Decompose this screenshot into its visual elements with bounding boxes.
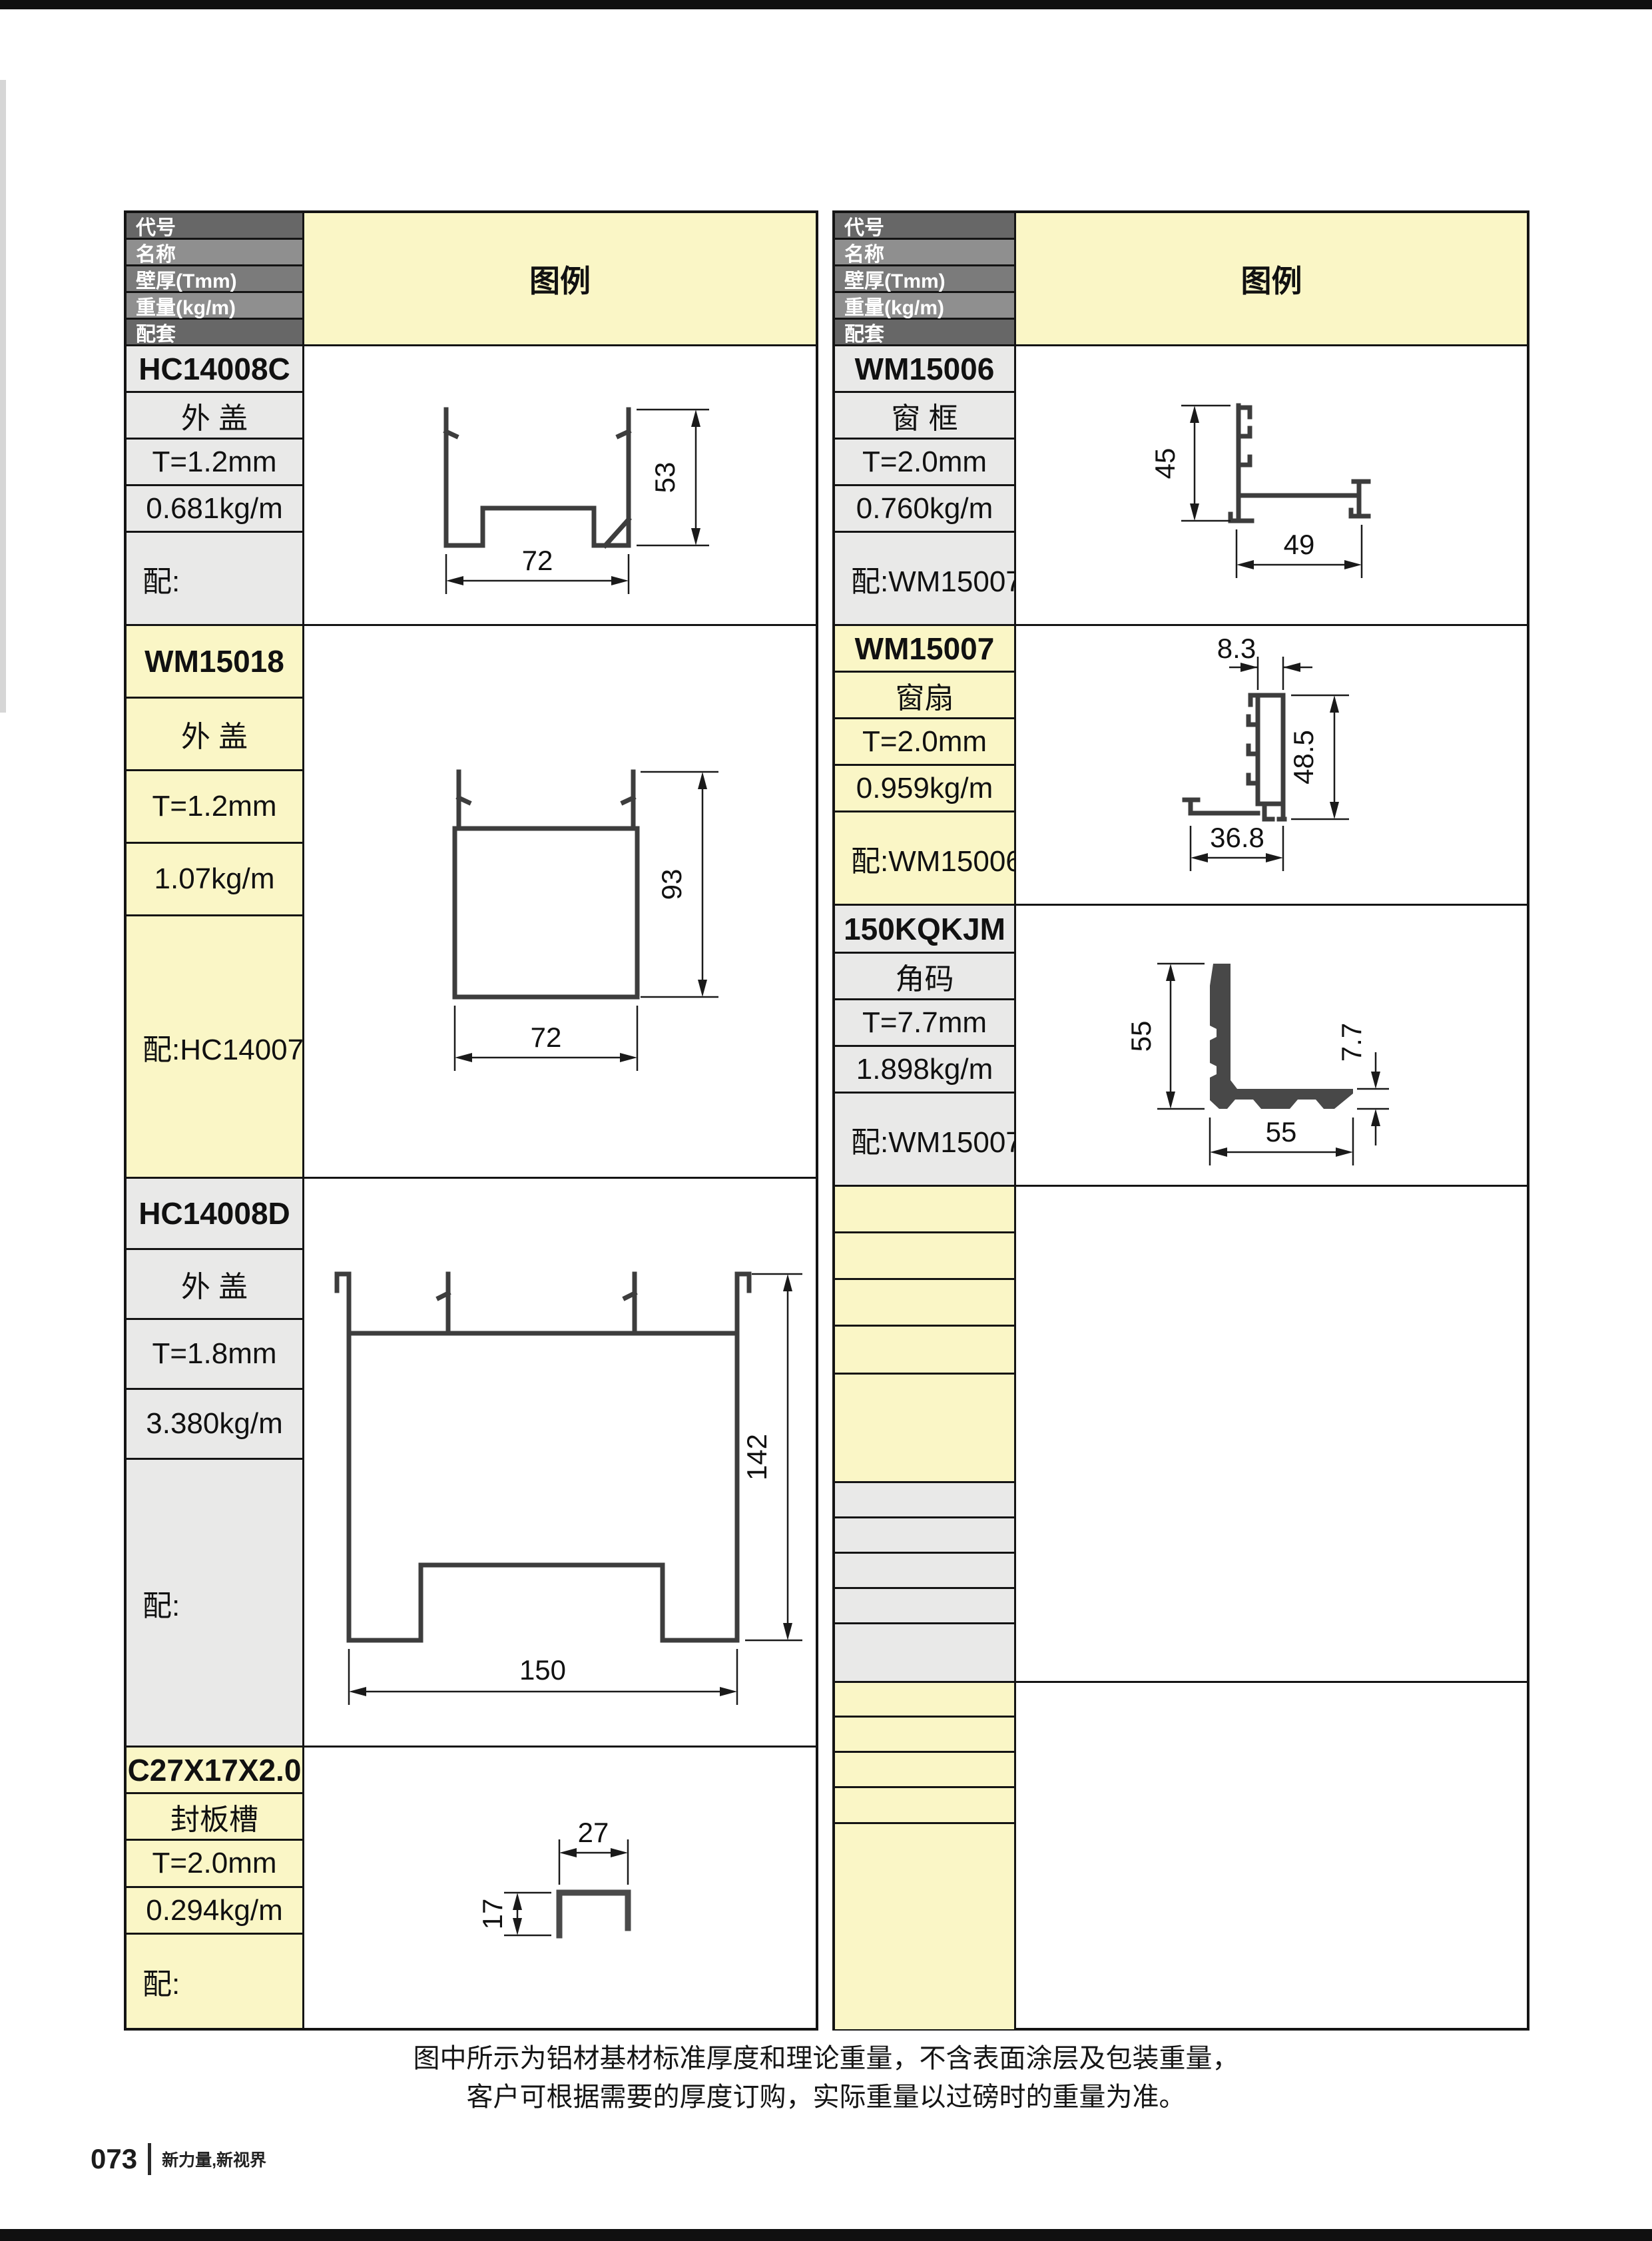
match-cell: 配: [127, 1460, 302, 1748]
drawing-cell-wm15006: 45 49 [1016, 346, 1527, 626]
drawing-cell-wm15018: 93 72 [304, 626, 816, 1179]
wm15007-profile-drawing: 8.3 48.5 36.8 [1016, 626, 1527, 904]
drawing-cell-hc14008c: 72 53 [304, 346, 816, 626]
name-cell: 外 盖 [127, 699, 302, 771]
dim-label: 53 [649, 462, 681, 493]
match-cell: 配:WM15007 [835, 533, 1014, 626]
right-spec-table: 代号 名称 壁厚(Tmm) 重量(kg/m) 配套 WM15006 窗 框 T=… [832, 210, 1529, 2031]
dim-label: 72 [522, 545, 553, 576]
empty-cell [835, 1624, 1014, 1683]
dim-label: 49 [1284, 529, 1315, 560]
name-cell: 角码 [835, 954, 1014, 1000]
name-cell: 窗 框 [835, 393, 1014, 440]
empty-cell [835, 1824, 1014, 2029]
match-cell: 配: [127, 1935, 302, 2028]
header-cell-thickness: 壁厚(Tmm) [127, 266, 302, 293]
header-cell-weight: 重量(kg/m) [127, 293, 302, 320]
empty-drawing-cell [1016, 1187, 1527, 1683]
dim-label: 55 [1266, 1116, 1297, 1147]
empty-cell [835, 1327, 1014, 1375]
header-cell-thickness: 壁厚(Tmm) [835, 266, 1014, 293]
weight-cell: 3.380kg/m [127, 1390, 302, 1460]
header-cell-name: 名称 [835, 240, 1014, 266]
disclaimer-line-1: 图中所示为铝材基材标准厚度和理论重量，不含表面涂层及包装重量， [0, 2039, 1652, 2078]
match-cell: 配:WM15007 [835, 1094, 1014, 1187]
header-cell-match: 配套 [835, 320, 1014, 346]
dim-label: 72 [531, 1022, 562, 1053]
dim-label: 27 [578, 1817, 609, 1848]
left-spec-table: 代号 名称 壁厚(Tmm) 重量(kg/m) 配套 HC14008C 外 盖 T… [124, 210, 818, 2031]
thickness-cell: T=1.2mm [127, 771, 302, 844]
thickness-cell: T=2.0mm [835, 719, 1014, 766]
code-cell: HC14008C [127, 346, 302, 393]
right-table-label-column: 代号 名称 壁厚(Tmm) 重量(kg/m) 配套 WM15006 窗 框 T=… [835, 213, 1016, 2028]
code-cell: HC14008D [127, 1179, 302, 1250]
thickness-cell: T=7.7mm [835, 1000, 1014, 1047]
left-table-drawing-column: 图例 72 53 93 72 [304, 213, 816, 2028]
name-cell: 外 盖 [127, 1250, 302, 1320]
empty-drawing-cell [1016, 1683, 1527, 2028]
disclaimer-notes: 图中所示为铝材基材标准厚度和理论重量，不含表面涂层及包装重量， 客户可根据需要的… [0, 2039, 1652, 2116]
dim-label: 142 [741, 1434, 772, 1480]
footer-divider [148, 2143, 151, 2175]
thickness-cell: T=1.8mm [127, 1320, 302, 1390]
empty-cell [835, 1788, 1014, 1824]
dim-label: 48.5 [1288, 730, 1319, 785]
drawing-cell-150kqkjm: 55 55 7.7 [1016, 906, 1527, 1187]
disclaimer-line-2: 客户可根据需要的厚度订购，实际重量以过磅时的重量为准。 [0, 2078, 1652, 2116]
left-edge-print-mark [0, 80, 6, 713]
empty-cell [835, 1554, 1014, 1589]
empty-cell [835, 1187, 1014, 1233]
drawing-cell-hc14008d: 150 142 [304, 1179, 816, 1748]
kqkjm-corner-bracket-drawing: 55 55 7.7 [1016, 906, 1527, 1185]
page-number: 073 [91, 2143, 137, 2175]
empty-cell [835, 1683, 1014, 1718]
thickness-cell: T=2.0mm [127, 1841, 302, 1888]
thickness-cell: T=1.2mm [127, 440, 302, 486]
empty-cell [835, 1589, 1014, 1624]
thickness-cell: T=2.0mm [835, 440, 1014, 486]
name-cell: 封板槽 [127, 1794, 302, 1841]
legend-header-cell: 图例 [1016, 213, 1527, 346]
code-cell: C27X17X2.0 [127, 1748, 302, 1794]
dim-label: 36.8 [1210, 822, 1264, 853]
top-black-bar [0, 0, 1652, 9]
match-cell: 配:HC14007 [127, 916, 302, 1179]
name-cell: 外 盖 [127, 393, 302, 440]
code-cell: WM15006 [835, 346, 1014, 393]
header-cell-weight: 重量(kg/m) [835, 293, 1014, 320]
weight-cell: 0.681kg/m [127, 486, 302, 533]
name-cell: 窗扇 [835, 673, 1014, 719]
hc14008c-profile-drawing: 72 53 [304, 346, 816, 624]
empty-cell [835, 1718, 1014, 1753]
dim-label: 55 [1125, 1021, 1157, 1052]
code-cell: 150KQKJM [835, 906, 1014, 954]
weight-cell: 1.07kg/m [127, 844, 302, 916]
empty-cell [835, 1483, 1014, 1518]
code-cell: WM15018 [127, 626, 302, 699]
header-cell-code: 代号 [835, 213, 1014, 240]
left-table-label-column: 代号 名称 壁厚(Tmm) 重量(kg/m) 配套 HC14008C 外 盖 T… [127, 213, 304, 2028]
wm15018-profile-drawing: 93 72 [304, 626, 816, 1177]
empty-cell [835, 1280, 1014, 1327]
legend-header-cell: 图例 [304, 213, 816, 346]
hc14008d-profile-drawing: 150 142 [304, 1179, 816, 1746]
footer-slogan: 新力量,新视界 [162, 2147, 266, 2171]
empty-cell [835, 1518, 1014, 1554]
header-cell-match: 配套 [127, 320, 302, 346]
header-cell-code: 代号 [127, 213, 302, 240]
drawing-cell-c27x17: 27 17 [304, 1748, 816, 2028]
weight-cell: 1.898kg/m [835, 1047, 1014, 1094]
catalog-page: 代号 名称 壁厚(Tmm) 重量(kg/m) 配套 HC14008C 外 盖 T… [0, 0, 1652, 2241]
empty-cell [835, 1375, 1014, 1483]
dim-label: 45 [1149, 448, 1181, 480]
match-cell: 配:WM15006 [835, 812, 1014, 906]
bottom-black-bar [0, 2229, 1652, 2241]
wm15006-profile-drawing: 45 49 [1016, 346, 1527, 624]
weight-cell: 0.294kg/m [127, 1888, 302, 1935]
dim-label: 7.7 [1336, 1023, 1367, 1062]
dim-label: 17 [477, 1899, 508, 1930]
empty-cell [835, 1233, 1014, 1280]
weight-cell: 0.959kg/m [835, 766, 1014, 812]
header-cell-name: 名称 [127, 240, 302, 266]
match-cell: 配: [127, 533, 302, 626]
page-footer: 073 新力量,新视界 [91, 2143, 266, 2175]
empty-cell [835, 1753, 1014, 1788]
c27x17-profile-drawing: 27 17 [304, 1748, 816, 2028]
dim-label: 8.3 [1217, 633, 1256, 664]
dim-label: 150 [519, 1654, 566, 1686]
right-table-drawing-column: 图例 45 49 8.3 [1016, 213, 1527, 2028]
dim-label: 93 [656, 869, 687, 900]
code-cell: WM15007 [835, 626, 1014, 673]
drawing-cell-wm15007: 8.3 48.5 36.8 [1016, 626, 1527, 906]
weight-cell: 0.760kg/m [835, 486, 1014, 533]
